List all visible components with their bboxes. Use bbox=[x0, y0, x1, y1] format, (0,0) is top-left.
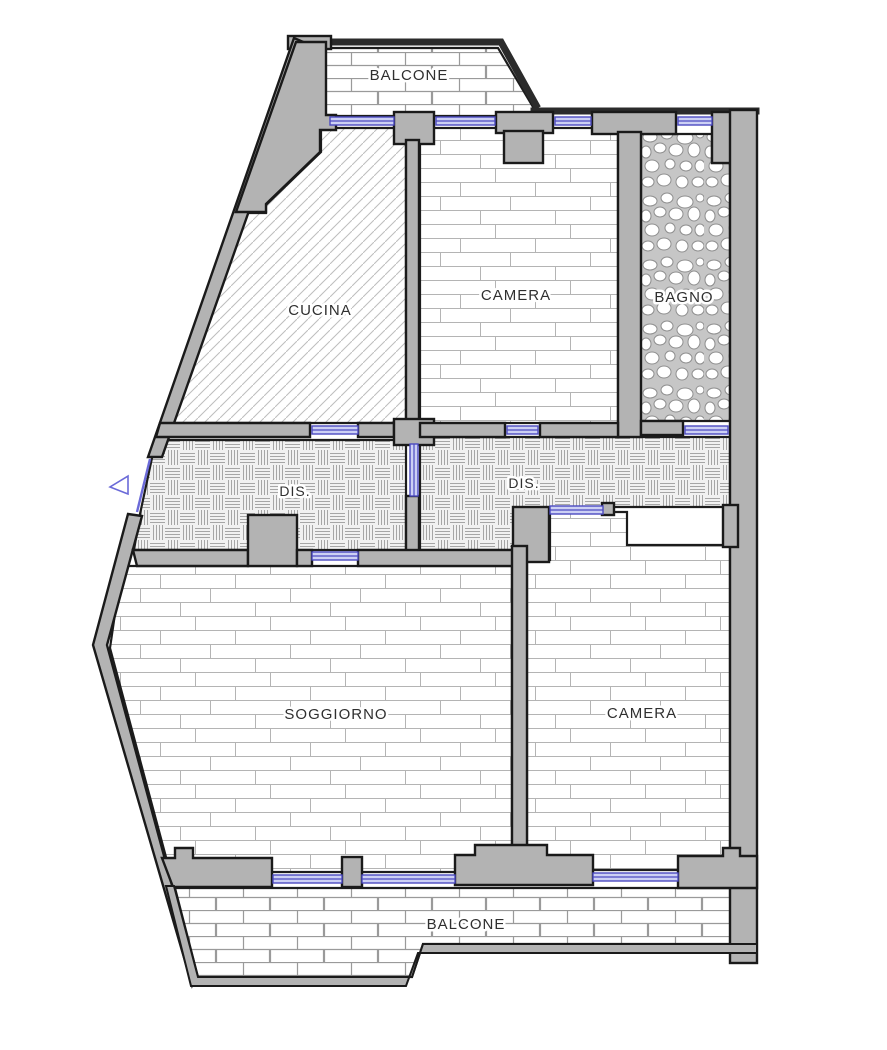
window-bottom-3 bbox=[593, 873, 678, 881]
door-dis-soggiorno bbox=[312, 552, 358, 560]
soggiorno-top-pillar bbox=[248, 515, 297, 566]
cucina-bottom-wall-left bbox=[156, 423, 310, 437]
door-camera-dis bbox=[507, 426, 538, 434]
top-pillar-3 bbox=[592, 112, 676, 134]
camera-bottom-wall-right bbox=[540, 423, 618, 437]
label-balcone-bottom: BALCONE bbox=[427, 916, 506, 933]
bagno-bottom-wall bbox=[641, 421, 683, 435]
label-dis-right: DIS. bbox=[508, 475, 539, 491]
soggiorno-top-wall-right bbox=[358, 550, 514, 566]
room-bagno bbox=[633, 134, 730, 421]
entrance-door-arrow-icon bbox=[110, 476, 128, 494]
window-top-1 bbox=[330, 117, 394, 125]
label-dis-left: DIS. bbox=[279, 483, 310, 499]
camera-bottom-wall-left bbox=[420, 423, 505, 437]
room-camera-bottom bbox=[527, 512, 730, 870]
wall-cucina-camera bbox=[406, 140, 419, 425]
label-bagno: BAGNO bbox=[654, 289, 713, 306]
label-soggiorno: SOGGIORNO bbox=[284, 706, 387, 723]
floor-plan: BALCONE CUCINA CAMERA BAGNO DIS. DIS. SO… bbox=[0, 0, 887, 1050]
floor-plan-drawing: BALCONE CUCINA CAMERA BAGNO DIS. DIS. SO… bbox=[0, 0, 887, 1050]
wall-camera-bagno bbox=[618, 132, 641, 437]
door-bagno-dis bbox=[685, 426, 728, 434]
door-dis-camera-bottom bbox=[550, 506, 603, 514]
wall-soggiorno-camera bbox=[512, 546, 527, 857]
door-dis-dis bbox=[410, 444, 418, 496]
door-cucina-dis bbox=[312, 426, 358, 434]
label-balcone-top: BALCONE bbox=[370, 67, 449, 84]
soggiorno-top-wall-left bbox=[133, 550, 248, 566]
dis-right-step bbox=[723, 505, 738, 547]
soggiorno-top-wall-mid bbox=[297, 550, 312, 566]
window-top-2 bbox=[436, 117, 495, 125]
window-top-bagno bbox=[678, 117, 712, 125]
top-pillar-2-stem bbox=[504, 131, 543, 163]
window-bottom-2 bbox=[362, 875, 455, 883]
cucina-bottom-wall-right bbox=[358, 423, 394, 437]
camera-bottom-wall-stub bbox=[602, 503, 614, 515]
label-cucina: CUCINA bbox=[288, 302, 352, 319]
window-bottom-1 bbox=[273, 875, 342, 883]
label-camera-top: CAMERA bbox=[481, 287, 551, 304]
room-camera-top bbox=[420, 128, 618, 423]
window-top-3 bbox=[555, 117, 591, 125]
bottom-wall-pier bbox=[342, 857, 362, 887]
label-camera-bottom: CAMERA bbox=[607, 705, 677, 722]
